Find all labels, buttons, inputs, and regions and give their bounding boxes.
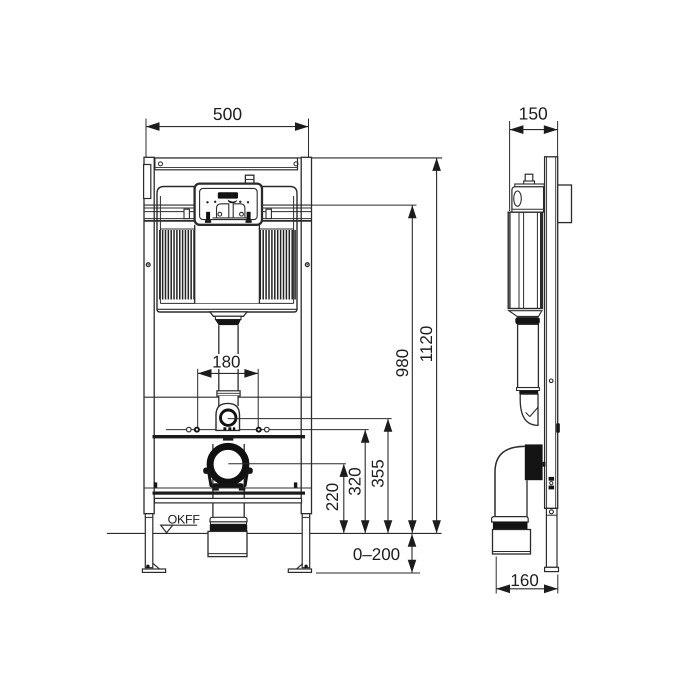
svg-text:980: 980	[393, 349, 412, 377]
svg-text:0–200: 0–200	[353, 545, 400, 564]
svg-text:160: 160	[510, 571, 538, 590]
svg-text:355: 355	[369, 459, 388, 487]
svg-text:320: 320	[346, 467, 365, 495]
svg-text:OKFF: OKFF	[168, 512, 201, 526]
svg-text:500: 500	[213, 104, 242, 124]
svg-text:1120: 1120	[417, 326, 436, 363]
svg-text:TECE: TECE	[222, 194, 236, 200]
svg-text:180: 180	[212, 353, 240, 372]
svg-text:220: 220	[323, 483, 342, 511]
svg-text:150: 150	[519, 104, 548, 124]
